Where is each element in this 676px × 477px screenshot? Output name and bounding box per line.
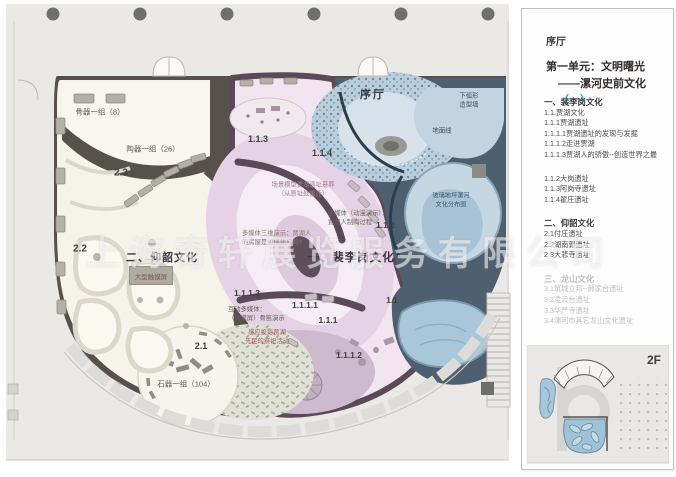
unit-subtitle-text: ——漯河史前文化: [558, 78, 646, 90]
arc-wall-line1: 下弧形: [460, 92, 479, 101]
minimap-highlight-bottom: [563, 417, 607, 453]
glass-floor-line1: 玻璃地坪漯河: [432, 192, 469, 201]
outline-item: 1.1.1.1贾湖遗址的发现与发掘: [544, 129, 668, 140]
zone-code-2-1: 2.1: [195, 341, 208, 351]
outline-item: 3.3华严寺遗址: [544, 306, 668, 317]
interactive-line2: （触摸屏）骨笛演示: [228, 314, 285, 323]
outline-item: 2.1付庄遗址: [544, 229, 668, 240]
outline-list: 一、裴李岗文化 1.1.贾湖文化 1.1.1贾湖遗址 1.1.1.1贾湖遗址的发…: [544, 97, 668, 327]
bone-group-label: 骨器一组（8）: [75, 107, 124, 118]
multimedia-anim-line1: 多媒体（动漫演示）：: [328, 209, 388, 218]
multimedia-3d-line1: 多媒体三维演示：贾湖人: [242, 229, 311, 238]
outline-item: 1.1.1.3贾湖人的骄傲--创造世界之最: [544, 150, 668, 161]
yangshao-title: 二、仰韶文化: [126, 249, 198, 265]
zone-code-1-1-1-1: 1.1.1.1: [292, 300, 318, 310]
outline-item: 1.1.贾湖文化: [544, 108, 668, 119]
minimap-column-grid: [615, 377, 667, 449]
outline-item: 1.1.1贾湖遗址: [544, 118, 668, 129]
zone-code-2-3: 2.3: [114, 168, 128, 179]
zone-code-1-1-1-3: 1.1.1.3: [234, 288, 260, 298]
projection-label: 感应投影贾湖 先民的祭祀活动: [245, 328, 289, 346]
lobby-title: 序厅: [360, 86, 386, 102]
multimedia-3d-line2: 的房屋是如何建成的?: [242, 238, 311, 247]
peiligang-title: 一、裴李岗文化: [307, 249, 395, 265]
floor-plan: 骨器一组（8） 陶器一组（26） 2.3 2.2 二、仰韶文化 大型触摸屏 2.…: [0, 0, 515, 477]
scene-model-label: 场景模型贾湖遗址墓葬 （从原址处搬迁）: [272, 181, 335, 200]
unit-title: 第一单元：文明曙光: [546, 58, 645, 74]
arc-wall-label: 下弧形 造型墙: [460, 92, 479, 111]
outline-item: 1.1.3阿岗寺遗址: [544, 184, 668, 195]
zone-code-1-1: 1.1: [386, 295, 398, 305]
interactive-line1: 互动多媒体：: [228, 305, 285, 314]
glass-floor-line2: 文化分布图: [432, 201, 469, 210]
outline-item: 3.2凌云台遗址: [544, 295, 668, 306]
pottery-group-label: 陶器一组（26）: [126, 144, 179, 155]
interactive-label: 互动多媒体： （触摸屏）骨笛演示: [228, 305, 285, 323]
stone-group-label: 石器一组（104）: [157, 379, 215, 390]
zone-code-1-1-4: 1.1.4: [312, 148, 332, 158]
outline-item: 3.1筑城立邦--郝家台遗址: [544, 284, 668, 295]
zone-code-1-1-1: 1.1.1: [319, 315, 338, 325]
multimedia-3d-label: 多媒体三维演示：贾湖人 的房屋是如何建成的?: [242, 229, 311, 247]
glass-floor-label: 玻璃地坪漯河 文化分布图: [432, 192, 469, 211]
zone-code-2-2: 2.2: [73, 244, 87, 255]
touchscreen-box: 大型触摸屏: [129, 266, 173, 285]
outline-item: 二、仰韶文化: [544, 218, 668, 229]
scene-model-line2: （从原址处搬迁）: [272, 190, 335, 199]
zone-code-1-1-2: 1.1.2: [376, 219, 395, 231]
outline-item: 三、龙山文化: [544, 274, 668, 285]
scene-model-display: [230, 98, 306, 138]
outline-item: 1.1.2大岗遗址: [544, 174, 668, 185]
outline-panel: 序厅 第一单元：文明曙光 ——漯河史前文化（一） 一、裴李岗文化 1.1.贾湖文…: [521, 8, 674, 470]
projection-line2: 先民的祭祀活动: [245, 337, 289, 346]
outline-item: 1.1.1.2走进贾湖: [544, 139, 668, 150]
outline-item: 2.2湖南郭遗址: [544, 240, 668, 251]
arc-wall-line2: 造型墙: [460, 101, 479, 110]
outline-item: 1.1.4翟庄遗址: [544, 195, 668, 206]
screenshot-root: 骨器一组（8） 陶器一组（26） 2.3 2.2 二、仰韶文化 大型触摸屏 2.…: [0, 0, 676, 477]
outline-item: 一、裴李岗文化: [544, 97, 668, 108]
sidebar-lobby-label: 序厅: [546, 33, 566, 48]
touchscreen-label: 大型触摸屏: [135, 271, 168, 281]
zone-code-1-1-1-2: 1.1.1.2: [336, 350, 362, 360]
projection-line1: 感应投影贾湖: [245, 328, 289, 337]
floor-tag: 2F: [647, 353, 661, 367]
outline-item: 3.4漯河市其它龙山文化遗址: [544, 316, 668, 327]
zone-code-1-1-3: 1.1.3: [248, 134, 268, 144]
outline-item: 2.3大悲寺遗址: [544, 250, 668, 261]
ground-line-label: 地面线: [433, 126, 452, 135]
scene-model-line1: 场景模型贾湖遗址墓葬: [272, 181, 335, 190]
